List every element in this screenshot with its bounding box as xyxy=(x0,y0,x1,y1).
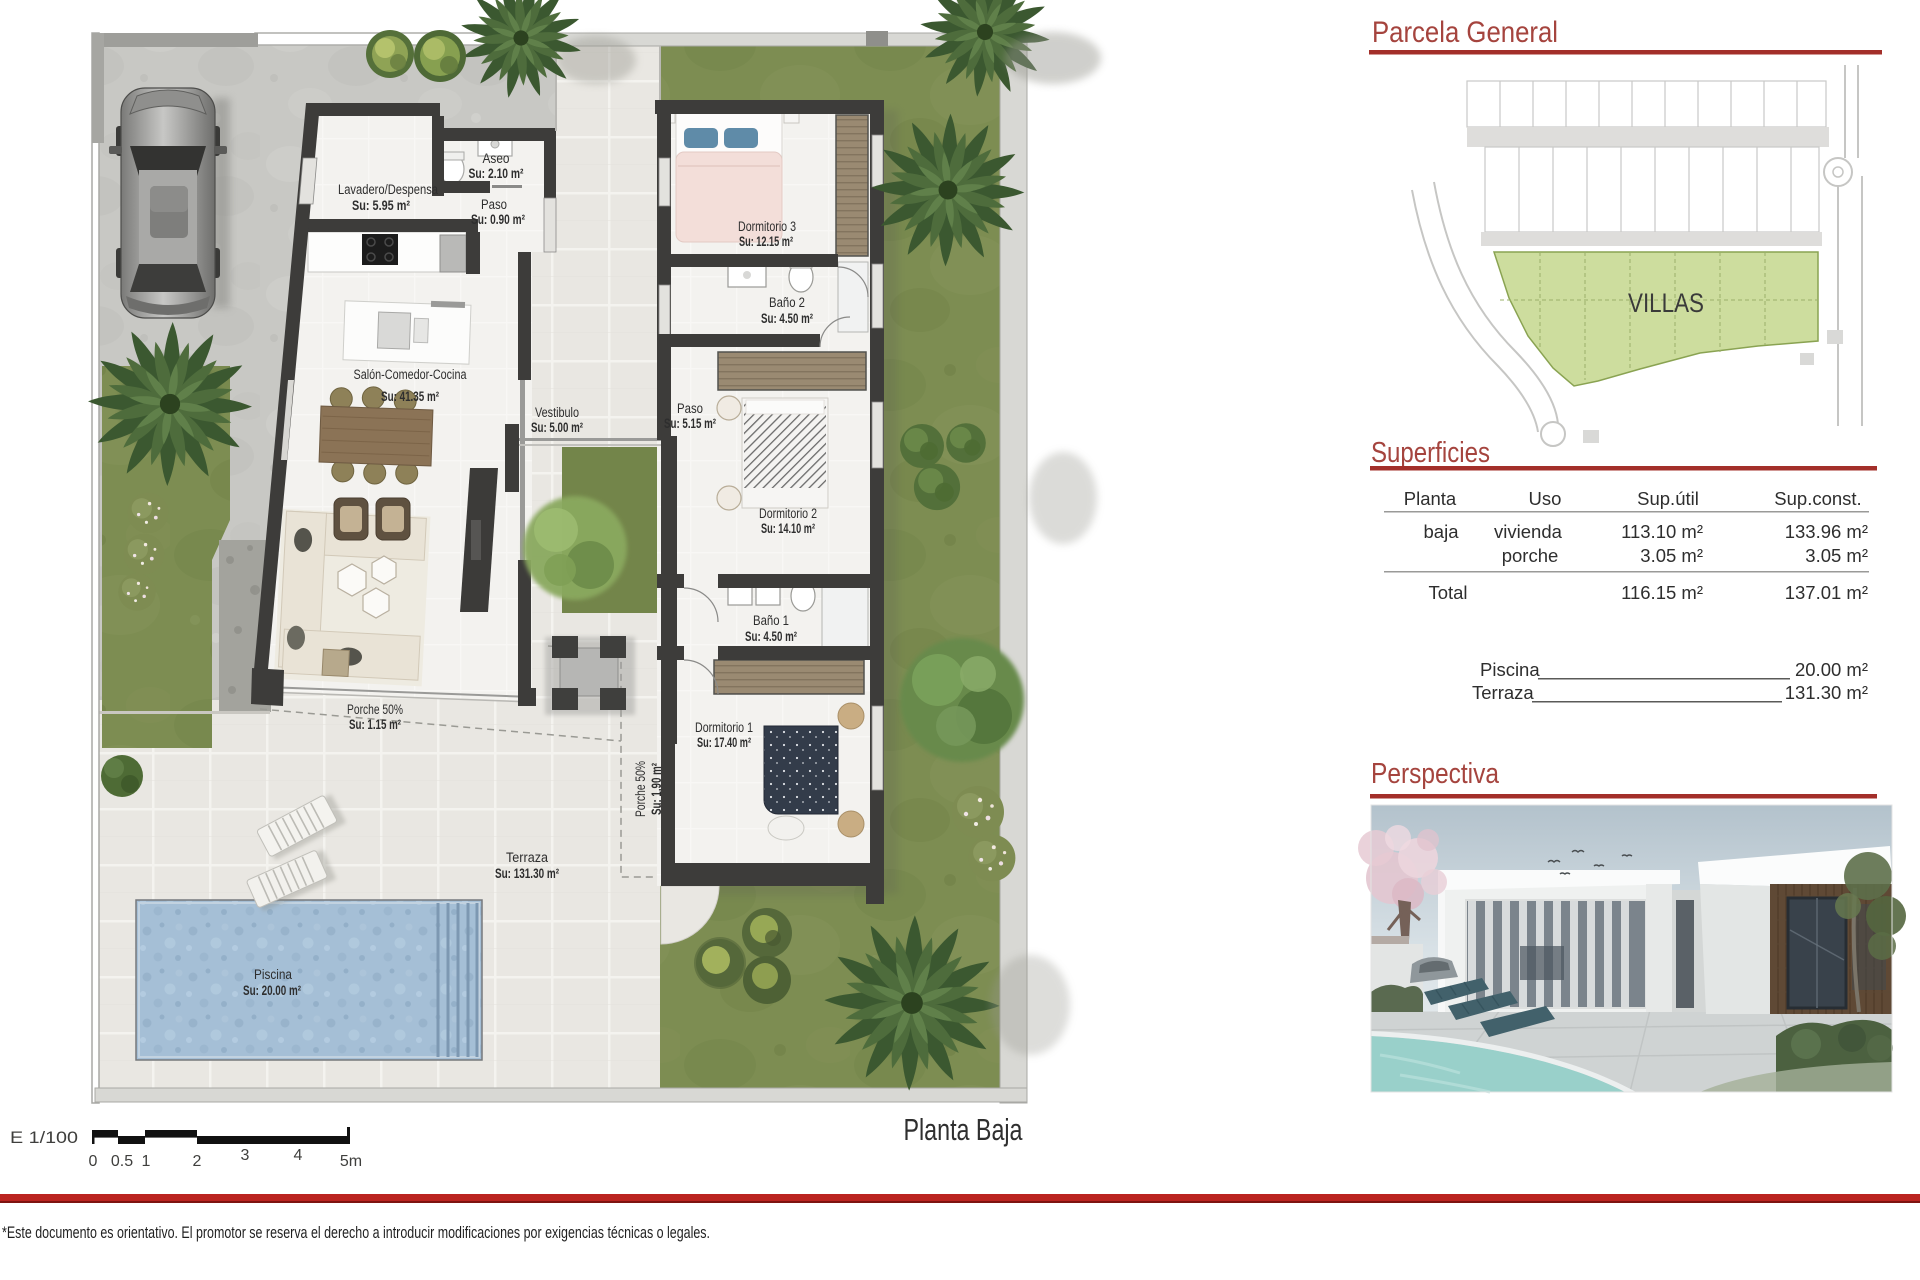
svg-text:Sup.const.: Sup.const. xyxy=(1774,488,1861,509)
svg-text:baja: baja xyxy=(1424,521,1460,542)
svg-text:Su: 17.40 m²: Su: 17.40 m² xyxy=(697,735,751,750)
svg-text:0.5: 0.5 xyxy=(111,1153,133,1170)
svg-text:Terraza: Terraza xyxy=(506,850,548,865)
svg-text:Baño 2: Baño 2 xyxy=(769,295,805,310)
svg-text:3.05 m²: 3.05 m² xyxy=(1805,545,1868,566)
svg-text:Porche 50%: Porche 50% xyxy=(633,761,648,817)
svg-text:Paso: Paso xyxy=(481,197,507,212)
svg-text:1: 1 xyxy=(142,1153,151,1170)
svg-text:Paso: Paso xyxy=(677,401,703,416)
svg-text:137.01 m²: 137.01 m² xyxy=(1785,582,1868,603)
svg-text:Su: 1.15 m²: Su: 1.15 m² xyxy=(349,717,401,732)
svg-text:5m: 5m xyxy=(340,1153,362,1170)
svg-text:E 1/100: E 1/100 xyxy=(10,1128,78,1147)
svg-text:Su: 5.95 m²: Su: 5.95 m² xyxy=(352,198,410,213)
svg-text:Uso: Uso xyxy=(1529,488,1562,509)
svg-text:Piscina: Piscina xyxy=(254,967,292,982)
svg-text:Lavadero/Despensa: Lavadero/Despensa xyxy=(338,182,438,197)
svg-text:131.30 m²: 131.30 m² xyxy=(1785,682,1868,703)
svg-text:Dormitorio 1: Dormitorio 1 xyxy=(695,720,753,735)
svg-text:133.96 m²: 133.96 m² xyxy=(1785,521,1868,542)
svg-text:porche: porche xyxy=(1502,545,1559,566)
svg-text:4: 4 xyxy=(294,1147,303,1164)
svg-text:20.00 m²: 20.00 m² xyxy=(1795,659,1868,680)
svg-text:Dormitorio 3: Dormitorio 3 xyxy=(738,219,796,234)
svg-text:Su: 5.15 m²: Su: 5.15 m² xyxy=(664,416,716,431)
svg-text:Su: 4.50 m²: Su: 4.50 m² xyxy=(761,311,813,326)
svg-text:3.05 m²: 3.05 m² xyxy=(1640,545,1703,566)
svg-text:Su: 5.00 m²: Su: 5.00 m² xyxy=(531,420,583,435)
svg-text:*Este documento es orientativo: *Este documento es orientativo. El promo… xyxy=(2,1223,710,1242)
svg-text:116.15 m²: 116.15 m² xyxy=(1621,582,1703,603)
svg-text:VILLAS: VILLAS xyxy=(1628,288,1704,318)
svg-text:Salón-Comedor-Cocina: Salón-Comedor-Cocina xyxy=(354,367,467,382)
svg-text:Su: 4.50 m²: Su: 4.50 m² xyxy=(745,629,797,644)
svg-text:Planta Baja: Planta Baja xyxy=(904,1112,1024,1147)
svg-text:Su: 14.10 m²: Su: 14.10 m² xyxy=(761,521,815,536)
svg-text:Sup.útil: Sup.útil xyxy=(1637,488,1699,509)
svg-text:Dormitorio 2: Dormitorio 2 xyxy=(759,506,817,521)
svg-text:Baño 1: Baño 1 xyxy=(753,613,789,628)
svg-text:vivienda: vivienda xyxy=(1494,521,1563,542)
svg-text:3: 3 xyxy=(241,1147,250,1164)
svg-text:Total: Total xyxy=(1428,582,1467,603)
svg-text:Aseo: Aseo xyxy=(483,151,510,166)
svg-text:Porche 50%: Porche 50% xyxy=(347,702,403,717)
svg-text:Su: 1.90 m²: Su: 1.90 m² xyxy=(649,763,664,815)
svg-text:Su: 0.90 m²: Su: 0.90 m² xyxy=(471,212,525,227)
svg-text:Perspectiva: Perspectiva xyxy=(1371,758,1500,790)
svg-text:Planta: Planta xyxy=(1404,488,1457,509)
svg-text:Su: 131.30 m²: Su: 131.30 m² xyxy=(495,866,559,881)
svg-text:0: 0 xyxy=(89,1153,98,1170)
svg-text:Su: 20.00 m²: Su: 20.00 m² xyxy=(243,983,301,998)
svg-text:Vestibulo: Vestibulo xyxy=(535,405,579,420)
svg-text:Su: 2.10 m²: Su: 2.10 m² xyxy=(469,166,524,181)
svg-text:2: 2 xyxy=(193,1153,202,1170)
svg-text:Terraza: Terraza xyxy=(1472,682,1534,703)
svg-text:113.10 m²: 113.10 m² xyxy=(1621,521,1703,542)
svg-text:Superficies: Superficies xyxy=(1371,437,1490,469)
svg-text:Piscina: Piscina xyxy=(1480,659,1540,680)
svg-text:Su: 12.15 m²: Su: 12.15 m² xyxy=(739,234,793,249)
svg-text:Su: 41.35 m²: Su: 41.35 m² xyxy=(381,389,439,404)
svg-text:Parcela General: Parcela General xyxy=(1372,16,1558,49)
